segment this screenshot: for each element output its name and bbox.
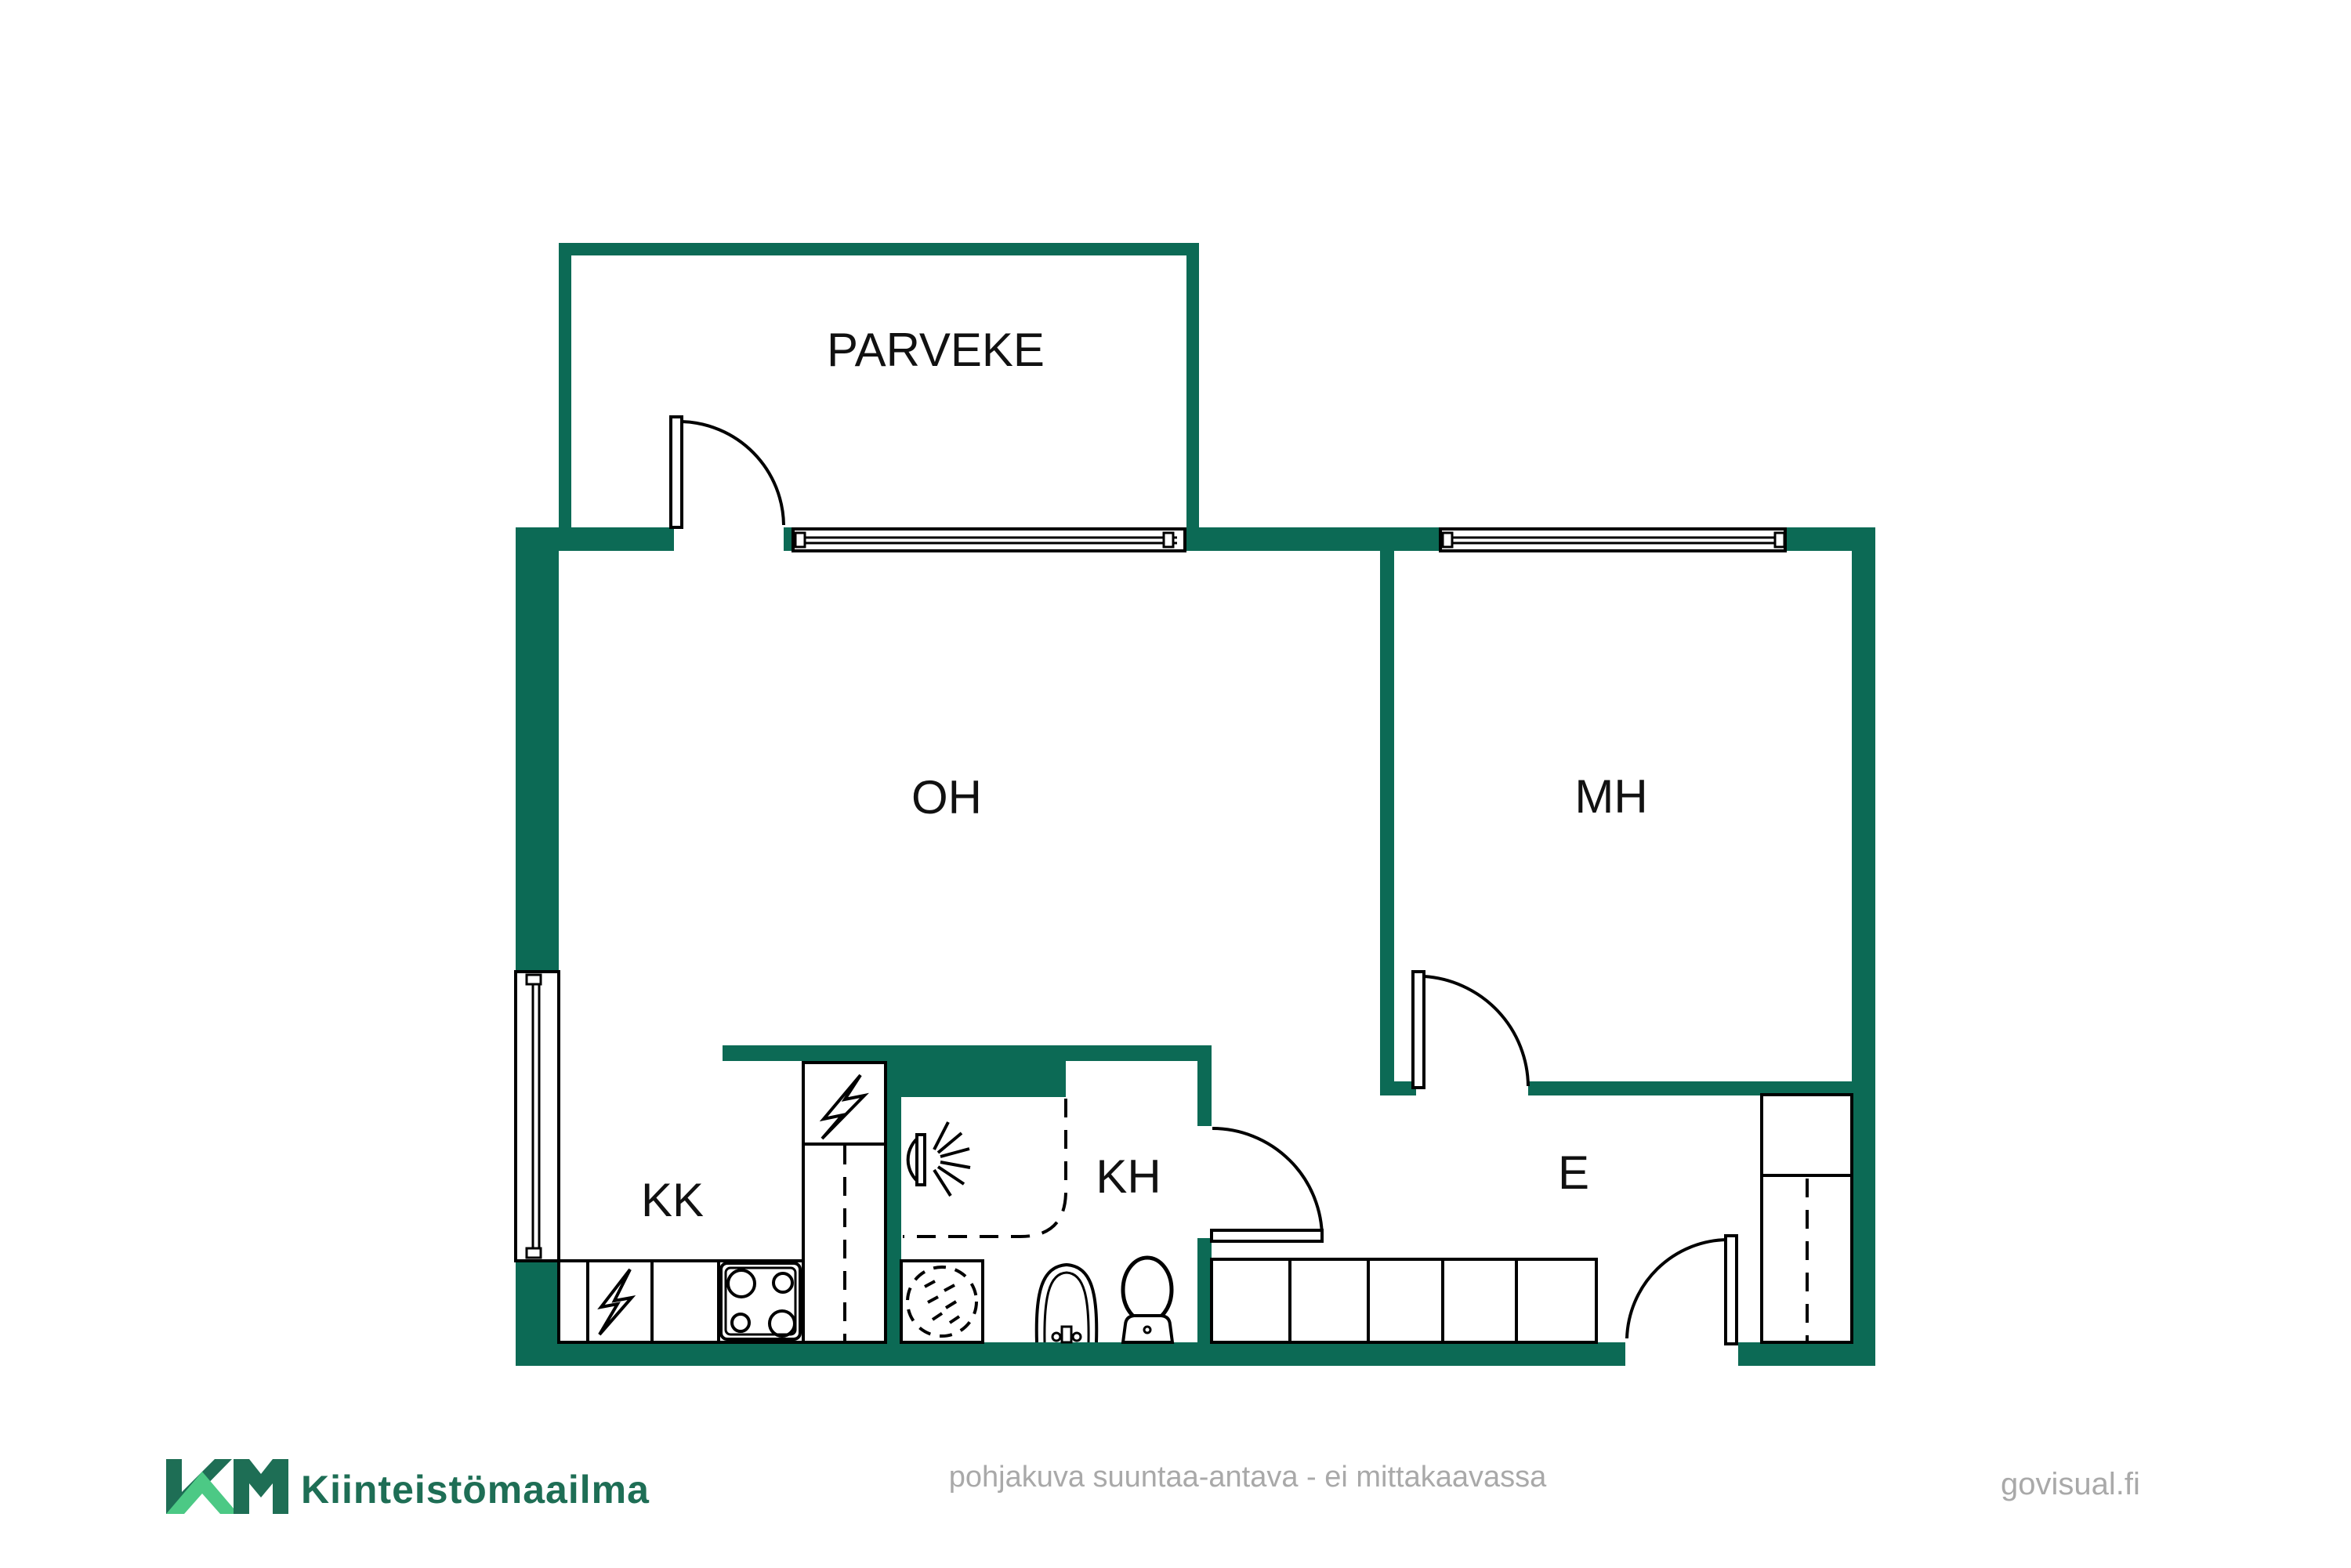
entrance-door-arc-icon — [1627, 1240, 1727, 1338]
sink-icon — [1037, 1265, 1097, 1342]
balcony-door-arc-icon — [682, 422, 784, 525]
bedroom-door-leaf — [1413, 972, 1424, 1088]
closet-icon — [1212, 1259, 1596, 1342]
kitchen-window-icon — [516, 972, 559, 1261]
walls — [516, 243, 1875, 1366]
bedroom-door — [1413, 972, 1528, 1097]
bathroom-label: KH — [1096, 1150, 1161, 1203]
bedroom-door-arc-icon — [1424, 976, 1528, 1086]
kitchenette-label: KK — [641, 1174, 704, 1226]
entry-fixtures — [1212, 1095, 1852, 1342]
bathroom-fixtures — [901, 1099, 1172, 1342]
shower-zone-boundary — [903, 1099, 1066, 1237]
washing-machine-icon — [901, 1261, 983, 1342]
stove-burners-icon — [721, 1263, 800, 1339]
toilet-icon — [1123, 1258, 1172, 1342]
kitchenette-fixtures — [559, 1063, 886, 1342]
tall-cabinet — [803, 1144, 886, 1342]
balcony-door — [671, 417, 784, 552]
bathroom-door-leaf — [1212, 1230, 1322, 1241]
bedroom-window-icon — [1440, 529, 1785, 551]
watermark-text: govisual.fi — [2001, 1467, 2140, 1501]
disclaimer-text: pohjakuva suuntaa-antava - ei mittakaava… — [949, 1461, 1547, 1494]
balcony-door-leaf — [671, 417, 682, 527]
floor-plan-canvas: PARVEKE OH MH KK KH E Kiinteistömaailma … — [0, 0, 2351, 1568]
entrance-door — [1625, 1236, 1738, 1368]
bathroom-door-arc-icon — [1212, 1128, 1322, 1238]
brand-name: Kiinteistömaailma — [301, 1468, 650, 1512]
outer-walls — [516, 527, 1875, 1366]
footer: Kiinteistömaailma pohjakuva suuntaa-anta… — [166, 1459, 2140, 1514]
entry-label: E — [1558, 1146, 1589, 1199]
bathroom-door — [1212, 1128, 1322, 1241]
km-logo-icon — [166, 1459, 288, 1514]
refrigerator-cabinet — [803, 1063, 886, 1144]
interior-walls — [723, 551, 1852, 1342]
living-room-window-icon — [793, 529, 1185, 551]
shower-icon — [908, 1122, 970, 1196]
balcony-label: PARVEKE — [827, 324, 1045, 376]
living-room-label: OH — [911, 771, 982, 824]
floor-plan-page: PARVEKE OH MH KK KH E Kiinteistömaailma … — [0, 0, 2351, 1568]
balcony-walls — [559, 243, 1199, 529]
entrance-door-leaf — [1726, 1236, 1737, 1344]
bedroom-label: MH — [1574, 770, 1647, 823]
wardrobe-icon — [1762, 1095, 1852, 1342]
